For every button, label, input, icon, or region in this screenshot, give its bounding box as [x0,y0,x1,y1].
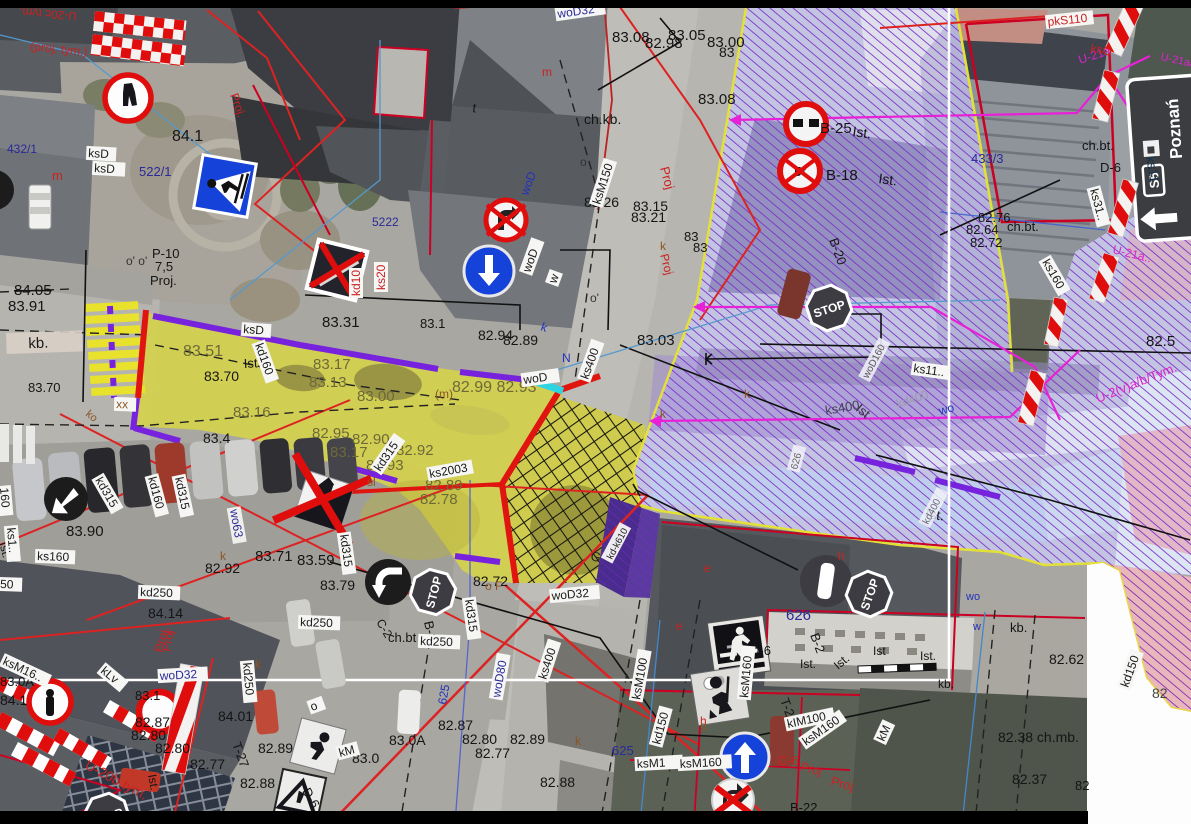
svg-text:kd250: kd250 [300,615,333,630]
svg-text:82.5: 82.5 [1146,333,1175,350]
svg-text:ksM1: ksM1 [636,755,666,770]
svg-text:k: k [744,387,751,401]
svg-text:N: N [562,351,571,365]
svg-text:83.0A: 83.0A [389,732,426,748]
svg-text:o F: o F [485,579,502,593]
svg-text:o' o': o' o' [126,254,147,268]
svg-text:83.21: 83.21 [631,209,666,225]
svg-text:woD32: woD32 [158,667,197,683]
svg-text:83.08: 83.08 [612,29,650,46]
svg-text:82.88: 82.88 [540,774,575,790]
svg-text:ks20: ks20 [374,264,388,290]
svg-text:C-6: C-6 [778,753,799,768]
svg-text:kd250: kd250 [140,585,173,600]
svg-text:ks1..: ks1.. [4,527,20,553]
svg-text:83.08: 83.08 [698,91,736,108]
svg-text:82.37: 82.37 [1012,771,1047,787]
svg-text:83.05: 83.05 [668,27,706,44]
svg-text:82.89: 82.89 [258,740,293,756]
svg-text:83.90: 83.90 [66,523,104,540]
svg-text:82.95: 82.95 [312,425,350,442]
svg-text:83.00: 83.00 [357,388,395,405]
svg-text:83.31: 83.31 [322,314,360,331]
svg-text:84.05: 84.05 [14,282,52,299]
svg-text:Ist.: Ist. [920,649,936,663]
svg-text:522/1: 522/1 [139,164,172,179]
svg-text:ch.bt: ch.bt [388,630,417,645]
svg-text:83.1: 83.1 [135,688,160,703]
svg-text:84.1: 84.1 [172,128,203,145]
svg-text:83: 83 [719,44,735,60]
svg-text:Ist: Ist [873,644,886,658]
svg-text:e: e [675,619,683,633]
svg-text:83.03: 83.03 [637,332,675,349]
svg-text:83: 83 [693,240,707,255]
svg-text:ks160: ks160 [37,549,70,564]
svg-text:ksD: ksD [88,146,110,161]
svg-text:83.79: 83.79 [320,577,355,593]
svg-text:83.91: 83.91 [8,298,46,315]
svg-text:B-25: B-25 [820,120,852,137]
svg-text:626: 626 [786,607,811,624]
svg-text:ksD: ksD [243,322,265,337]
svg-text:ksM160: ksM160 [679,755,722,771]
svg-text:433/3: 433/3 [971,151,1004,166]
svg-text:82.77: 82.77 [475,745,510,761]
svg-text:wo: wo [965,591,980,603]
svg-text:83.13: 83.13 [309,374,347,391]
svg-text:84.01: 84.01 [218,708,253,724]
svg-text:k: k [255,657,262,671]
svg-text:h: h [838,549,845,563]
svg-text:82.80: 82.80 [462,731,497,747]
svg-text:o: o [580,155,587,169]
svg-text:84.14: 84.14 [148,605,183,621]
svg-text:w: w [972,621,981,633]
svg-text:e: e [704,561,711,575]
svg-text:83.17: 83.17 [313,356,351,373]
svg-text:k: k [660,407,667,421]
svg-text:m: m [542,65,552,79]
svg-text:160: 160 [0,487,13,508]
svg-text:83.59: 83.59 [297,552,335,569]
svg-text:83.51: 83.51 [183,343,223,360]
svg-text:o: o [700,719,707,733]
svg-text:82.89: 82.89 [510,731,545,747]
svg-text:7,5: 7,5 [155,259,173,274]
svg-text:625: 625 [612,743,634,758]
svg-text:k: k [220,549,227,563]
svg-text:82.89: 82.89 [503,332,538,348]
svg-text:82.72: 82.72 [970,235,1003,250]
svg-text:83.1: 83.1 [420,316,445,331]
svg-text:5222: 5222 [372,215,399,229]
svg-text:kd250: kd250 [420,634,453,649]
svg-text:83.70: 83.70 [28,380,61,395]
svg-text:kd10: kd10 [349,270,363,296]
svg-text:(m): (m) [435,387,453,401]
svg-text:m: m [52,168,63,183]
svg-text:ksD: ksD [94,161,116,176]
svg-text:xx: xx [116,397,128,411]
svg-text:82.88: 82.88 [240,775,275,791]
svg-text:83.70: 83.70 [204,368,239,384]
svg-text:82.87: 82.87 [438,717,473,733]
svg-text:82: 82 [1075,778,1089,793]
svg-text:83.71: 83.71 [255,548,293,565]
svg-text:Proj.: Proj. [150,273,177,288]
svg-text:84.1: 84.1 [0,692,27,708]
svg-text:83.17: 83.17 [330,444,368,461]
svg-text:82.80: 82.80 [155,740,190,756]
svg-text:kb.: kb. [938,677,954,691]
svg-text:ch.bt.: ch.bt. [1082,138,1114,153]
svg-text:Ist.: Ist. [800,657,816,671]
svg-text:sl: sl [367,475,376,489]
svg-text:k: k [575,734,582,748]
svg-text:ch.kb.: ch.kb. [584,111,621,127]
svg-text:kb.: kb. [28,335,49,353]
svg-text:k: k [660,239,667,253]
svg-text:Ist.: Ist. [878,170,899,188]
svg-text:82.38 ch.mb.: 82.38 ch.mb. [998,729,1079,745]
svg-text:kb.: kb. [1010,620,1027,635]
svg-text:432/1: 432/1 [7,142,37,156]
svg-text:D-6: D-6 [1100,160,1121,175]
svg-text:ch.bt.: ch.bt. [1007,219,1039,234]
svg-text:82.62: 82.62 [1049,651,1084,667]
svg-text:o': o' [590,291,599,305]
svg-text:83.16: 83.16 [233,404,271,421]
svg-text:82.78: 82.78 [420,491,458,508]
svg-text:Ist.: Ist. [852,123,873,141]
svg-text:82.77: 82.77 [190,756,225,772]
svg-text:B-18: B-18 [826,167,858,184]
svg-text:50: 50 [0,577,14,591]
svg-text:83.4: 83.4 [203,430,230,446]
svg-text:82: 82 [1152,685,1168,701]
